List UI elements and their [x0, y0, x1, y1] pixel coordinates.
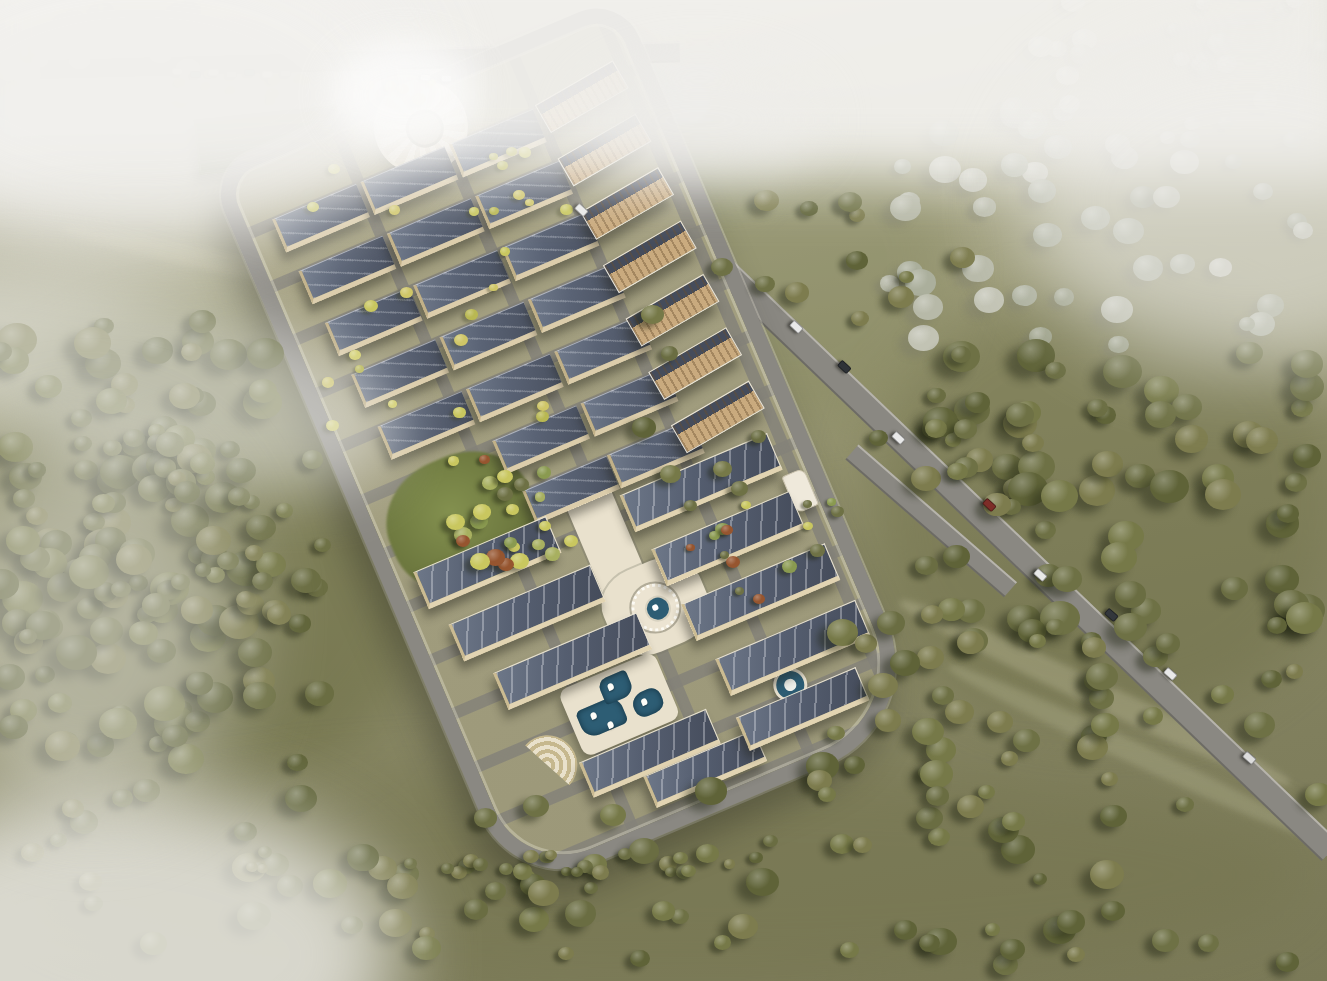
tree-bottom-band — [993, 954, 1018, 975]
tree-right-mid — [1236, 342, 1262, 364]
tree-left-forest-lower — [10, 699, 37, 722]
tree-right-upper-pale — [1153, 186, 1179, 209]
tree-bottom-band — [112, 789, 133, 806]
tree-right-upper-pale — [1081, 206, 1110, 231]
tree-right-upper-pale — [894, 159, 912, 174]
tree-right-mid — [938, 598, 966, 621]
tree-right-mid — [1291, 350, 1323, 377]
tree-left-edge-mid — [237, 593, 263, 616]
tree-bottom-band — [1198, 934, 1219, 952]
tree-left-forest-upper — [26, 507, 48, 526]
tree-left-forest-upper — [101, 492, 126, 513]
tree-topleft-pale — [178, 14, 202, 34]
tree-right-lower — [987, 711, 1013, 733]
tree-left-forest-upper — [182, 328, 214, 355]
tree-topleft-pale — [135, 88, 158, 107]
car — [172, 68, 183, 75]
tree-left-forest-lower — [162, 725, 187, 746]
tree-topright-pale — [1196, 0, 1210, 10]
tree-left-forest-lower — [243, 682, 276, 710]
tree-right-mid — [1274, 590, 1309, 619]
tree-right-mid — [1265, 565, 1299, 594]
tree-right-upper-pale — [913, 294, 943, 320]
tree-left-forest-lower — [186, 672, 213, 695]
tree-bottom-band — [919, 934, 940, 952]
tree-left-forest-lower — [287, 754, 308, 771]
tree-left-forest-lower — [35, 666, 55, 683]
tree-bottom-band — [1067, 947, 1085, 962]
apartment-slab — [535, 60, 629, 133]
tree-bottom-band — [133, 779, 160, 802]
tree-right-upper-pale — [890, 195, 921, 221]
tree-left-forest-lower — [56, 732, 77, 750]
tree-bottom-band — [652, 901, 675, 921]
apartment-slab — [580, 167, 674, 240]
tree-right-mid — [1006, 403, 1035, 427]
townhouse-block — [475, 161, 573, 230]
tree-bottom-band — [988, 817, 1019, 843]
tree-right-lower — [1046, 619, 1065, 635]
tree-bottom-band — [313, 869, 347, 898]
tree-topleft-pale — [149, 44, 172, 63]
tree-northeast-strip — [754, 190, 779, 211]
townhouse-block — [299, 236, 397, 305]
tree-riverside-yellow — [295, 74, 304, 82]
tree-right-lower — [1029, 634, 1046, 648]
tree-left-forest-upper — [97, 467, 130, 495]
tree-right-mid — [954, 395, 990, 426]
tree-left-forest-upper — [189, 310, 217, 333]
townhouse-block — [387, 198, 485, 267]
tree-left-forest-upper — [83, 513, 105, 531]
car — [837, 360, 852, 374]
tree-left-forest-lower — [99, 708, 137, 740]
round-feature-center — [783, 678, 798, 693]
tree-left-edge-mid — [245, 545, 263, 560]
tree-right-mid — [915, 556, 938, 575]
pool-water — [575, 694, 629, 740]
tree-bottom-band — [21, 843, 43, 862]
tree-left-forest-lower — [149, 736, 168, 752]
tree-bottom-band — [957, 795, 984, 818]
tree-left-forest-upper — [74, 436, 92, 451]
tree-right-upper-pale — [929, 156, 961, 183]
tree-topright-pale — [1105, 134, 1130, 156]
tree-northeast-strip — [925, 419, 947, 437]
tree-left-forest-lower — [90, 617, 123, 645]
tree-bottom-band — [978, 785, 995, 800]
tree-hedge-row — [749, 852, 762, 863]
tree-right-mid — [1108, 521, 1143, 551]
tree-left-forest-upper — [0, 347, 29, 373]
car — [982, 498, 997, 512]
tree-bottom-band — [237, 902, 270, 930]
tree-right-upper-pale — [1239, 317, 1256, 331]
tree-right-upper-pale — [1170, 150, 1199, 174]
tree-right-upper-pale — [1033, 223, 1062, 247]
apartment-slab — [626, 274, 720, 347]
tree-bottom-band — [853, 837, 872, 853]
car — [208, 69, 219, 76]
tree-topleft-pale — [32, 54, 48, 68]
tree-bottom-band — [763, 835, 778, 848]
tree-bottom-band — [1101, 901, 1125, 921]
tree-hedge-row — [441, 863, 454, 874]
tree-bottom-band — [412, 936, 441, 960]
tree-left-edge-mid — [226, 458, 255, 483]
tree-left-forest-upper — [13, 489, 36, 508]
tree-right-upper-pale — [1225, 154, 1242, 169]
tree-left-forest-upper — [0, 342, 12, 360]
tree-right-upper-pale — [1130, 186, 1156, 208]
car — [262, 71, 273, 78]
tree-topleft-pale — [153, 20, 171, 35]
tree-right-upper-pale — [974, 287, 1005, 313]
tree-left-forest-upper — [160, 461, 181, 479]
tree-left-forest-lower — [305, 681, 335, 706]
tree-right-lower — [844, 756, 865, 774]
tree-hedge-row — [592, 865, 610, 880]
tree-topleft-pale — [174, 88, 192, 103]
tree-left-forest-lower — [129, 621, 158, 645]
tree-right-mid — [1277, 504, 1299, 523]
tree-left-forest-upper — [246, 515, 275, 540]
car — [789, 320, 804, 334]
tree-hedge-row — [659, 856, 677, 871]
tree-topright-pale — [1207, 36, 1223, 50]
tree-right-upper-pale — [1113, 218, 1144, 244]
tree-right-upper-pale — [1028, 179, 1056, 203]
tree-bottom-band — [140, 932, 166, 954]
tree-right-mid — [1266, 509, 1300, 538]
tree-right-lower — [1305, 783, 1327, 806]
tree-left-forest-upper — [247, 338, 284, 370]
tree-bottom-band — [1100, 805, 1127, 828]
tree-left-forest-upper — [85, 348, 121, 379]
river-water — [110, 73, 222, 136]
tree-left-forest-lower — [0, 569, 19, 598]
tree-left-forest-lower — [137, 606, 157, 623]
tree-bottom-band — [985, 923, 1000, 936]
tree-left-forest-upper — [84, 529, 121, 560]
tree-bottom-band — [79, 872, 102, 891]
tree-left-edge-mid — [148, 424, 165, 439]
tree-left-forest-lower — [168, 744, 204, 775]
tree-hedge-row — [676, 865, 693, 879]
tree-left-forest-lower — [116, 544, 153, 575]
tree-northeast-strip — [838, 192, 861, 212]
entrance-fountain-core — [400, 104, 449, 153]
tree-left-forest-lower — [238, 638, 272, 667]
tree-topleft-pale — [161, 88, 178, 103]
tree-left-forest-lower — [129, 575, 148, 591]
townhouse-block — [440, 302, 538, 371]
tree-right-lower — [1244, 712, 1275, 739]
tree-left-forest-lower — [190, 621, 226, 652]
tree-bottom-band — [520, 870, 536, 883]
tree-left-forest-upper — [74, 460, 98, 480]
tree-left-forest-upper — [74, 327, 111, 359]
tree-bottom-band — [1001, 835, 1035, 864]
tree-right-mid — [1052, 566, 1082, 592]
tree-topright-pale — [1253, 90, 1277, 111]
tree-left-forest-upper — [188, 544, 213, 565]
tree-northeast-strip — [800, 201, 817, 216]
tree-right-upper-pale — [908, 325, 939, 352]
tree-northeast-strip — [849, 208, 865, 222]
tree-left-forest-lower — [0, 664, 25, 690]
tree-hedge-row — [673, 852, 688, 865]
tree-bottom-band — [714, 935, 732, 950]
tree-left-forest-lower — [69, 555, 109, 589]
aerial-rendering-canvas — [0, 0, 1327, 981]
tree-left-forest-upper — [0, 432, 33, 462]
tree-left-edge-mid — [267, 604, 292, 625]
townhouse-block — [351, 339, 449, 408]
tree-left-forest-lower — [243, 667, 275, 694]
tree-right-lower — [957, 631, 984, 654]
tree-right-mid — [1035, 564, 1062, 587]
tree-right-mid — [983, 493, 1010, 516]
tree-left-forest-lower — [14, 629, 43, 654]
tree-hedge-row — [252, 862, 266, 874]
tree-right-mid — [1267, 617, 1287, 634]
residential-site-band — [207, 0, 930, 897]
tree-right-lower — [1001, 751, 1019, 766]
tree-left-forest-upper — [169, 383, 199, 409]
tree-left-forest-upper — [122, 434, 153, 461]
tree-topleft-pale — [131, 24, 146, 37]
tree-right-upper-pale — [1293, 222, 1313, 239]
tree-left-forest-lower — [64, 559, 92, 582]
tree-topleft-pale — [72, 17, 88, 31]
tree-left-forest-upper — [95, 527, 126, 553]
tree-right-upper-pale — [1257, 294, 1284, 317]
tree-right-upper-pale — [1054, 288, 1075, 305]
tree-bottom-band — [1090, 860, 1124, 889]
tree-left-forest-lower — [56, 635, 97, 670]
tree-northeast-strip — [755, 276, 775, 293]
tree-right-upper-pale — [1133, 255, 1163, 280]
tree-bottom-band — [520, 874, 546, 896]
tree-topright-pale — [1274, 2, 1293, 18]
mist-patch — [0, 790, 400, 981]
tree-bottom-band — [1152, 929, 1179, 952]
tree-right-mid — [966, 448, 993, 471]
tree-right-mid — [1092, 451, 1122, 477]
tree-right-mid — [1079, 475, 1115, 505]
tree-right-upper-pale — [880, 275, 900, 292]
tree-topleft-pale — [19, 47, 38, 63]
tree-left-edge-mid — [147, 434, 168, 452]
tree-right-mid — [1045, 362, 1066, 380]
tree-left-forest-upper — [103, 440, 122, 456]
tree-bottom-band — [894, 920, 918, 940]
tree-riverside-yellow — [174, 78, 184, 87]
field-stripe — [895, 590, 1296, 795]
tree-left-forest-upper — [177, 444, 212, 473]
tree-right-lower — [945, 700, 973, 724]
tree-right-lower — [1086, 663, 1118, 690]
tree-bottom-band — [419, 927, 435, 941]
tree-right-mid — [1291, 399, 1313, 418]
tree-left-forest-upper — [220, 441, 240, 458]
tree-right-mid — [1286, 604, 1319, 632]
tree-topright-pale — [1028, 36, 1053, 57]
tree-left-forest-upper — [100, 455, 140, 489]
pool-water — [630, 685, 666, 719]
tree-right-mid — [1022, 434, 1044, 452]
tree-left-edge-mid — [236, 591, 256, 608]
tree-hedge-row — [257, 864, 269, 874]
tree-left-forest-upper — [9, 463, 41, 490]
tree-northeast-strip — [954, 419, 977, 438]
tree-northeast-strip — [851, 311, 869, 326]
tree-left-forest-upper — [94, 318, 114, 335]
tree-right-mid — [1014, 401, 1041, 424]
tree-left-edge-mid — [156, 432, 184, 456]
townhouse-block — [272, 184, 370, 253]
tree-left-forest-upper — [116, 397, 135, 413]
tree-topright-pale — [1283, 132, 1302, 148]
tree-right-lower — [1286, 664, 1303, 679]
tree-right-lower — [932, 686, 955, 705]
tree-left-forest-lower — [144, 686, 185, 720]
tree-bottom-band — [277, 875, 303, 897]
tree-riverside-yellow — [266, 88, 279, 99]
tree-topright-pale — [1180, 131, 1200, 148]
tree-hedge-row — [451, 866, 467, 879]
tree-right-upper-pale — [1022, 162, 1047, 184]
tree-right-mid — [957, 599, 985, 623]
tree-right-lower — [917, 646, 944, 669]
tree-left-forest-lower — [111, 581, 130, 597]
tree-left-forest-upper — [210, 339, 247, 370]
tree-right-mid — [1017, 339, 1056, 372]
tree-left-forest-lower — [174, 701, 193, 717]
tree-bottom-band — [928, 828, 950, 847]
tree-left-forest-lower — [0, 715, 28, 740]
car — [280, 70, 291, 77]
tree-left-forest-upper — [150, 416, 179, 440]
tree-bottom-band — [513, 863, 533, 880]
tree-left-edge-mid — [195, 563, 211, 577]
tree-topright-pale — [1072, 29, 1097, 50]
tree-northeast-strip — [846, 251, 869, 270]
tree-right-mid — [1233, 421, 1264, 447]
tree-right-mid — [1087, 399, 1108, 417]
tree-riverside-yellow — [266, 97, 275, 105]
tree-right-upper-pale — [1287, 213, 1307, 230]
tree-left-edge-mid — [190, 453, 215, 474]
tree-right-upper-pale — [1001, 153, 1029, 176]
tree-right-mid — [1172, 394, 1202, 420]
tree-left-forest-upper — [96, 388, 127, 414]
tree-bottom-band — [519, 907, 549, 932]
tree-topleft-pale — [176, 59, 201, 80]
field-stripe — [944, 657, 1316, 846]
apartment-slab — [648, 327, 742, 400]
tree-right-mid — [923, 407, 958, 437]
tree-right-lower — [1077, 734, 1108, 760]
mist-patch — [1020, 30, 1327, 370]
tree-topleft-pale — [0, 62, 19, 81]
tree-topleft-pale — [175, 1, 200, 23]
tree-right-lower — [1089, 687, 1115, 709]
tree-bottom-band — [728, 914, 758, 939]
tree-left-forest-lower — [48, 693, 72, 713]
tree-left-forest-lower — [19, 629, 37, 644]
tree-bottom-band — [916, 807, 943, 830]
tree-right-mid — [922, 419, 946, 439]
tree-left-edge-mid — [171, 574, 190, 590]
tree-left-forest-upper — [71, 409, 92, 427]
tree-northeast-strip — [888, 286, 914, 308]
tree-right-upper-pale — [973, 197, 995, 216]
tree-topright-pale — [1196, 60, 1217, 78]
tree-hedge-row — [499, 863, 513, 875]
tree-riverside-yellow — [226, 86, 235, 94]
tree-left-forest-lower — [2, 581, 43, 616]
tree-right-lower — [1101, 772, 1118, 787]
car — [244, 69, 255, 76]
tree-left-forest-lower — [77, 597, 103, 619]
tree-left-edge-mid — [142, 593, 170, 617]
tree-right-upper-pale — [1012, 285, 1037, 306]
tree-topright-pale — [1195, 51, 1216, 69]
tree-right-upper-pale — [905, 269, 936, 296]
tree-left-edge-mid — [314, 538, 331, 552]
tree-hedge-row — [681, 865, 696, 878]
tree-right-lower — [918, 765, 936, 780]
tree-right-mid — [943, 341, 980, 373]
tree-left-forest-lower — [79, 544, 111, 571]
tree-right-upper-pale — [1209, 258, 1232, 278]
tree-bottom-band — [234, 822, 257, 842]
tree-left-forest-lower — [6, 526, 40, 555]
tree-left-edge-mid — [262, 600, 288, 622]
tree-left-forest-lower — [157, 580, 181, 600]
tree-bottom-band — [387, 873, 418, 900]
tree-left-edge-mid — [181, 596, 213, 623]
tree-right-mid — [1035, 521, 1056, 539]
tree-left-forest-lower — [47, 573, 81, 602]
tree-left-edge-mid — [289, 614, 311, 633]
tree-left-forest-lower — [41, 530, 73, 557]
tree-northeast-strip — [945, 433, 961, 447]
tree-right-mid — [943, 545, 970, 568]
tree-left-edge-mid — [206, 567, 226, 584]
tree-hedge-row — [246, 862, 258, 872]
tree-left-forest-lower — [256, 552, 286, 577]
tree-topleft-pale — [103, 25, 119, 39]
tree-left-forest-upper — [205, 482, 241, 512]
tree-right-mid — [1125, 464, 1154, 489]
tree-bottom-band — [924, 928, 956, 955]
tree-bottom-band — [830, 834, 854, 855]
car — [1163, 667, 1178, 681]
tree-bottom-band — [584, 882, 598, 894]
tree-right-upper-pale — [1029, 327, 1052, 346]
tree-bottom-band — [840, 942, 859, 958]
tree-left-forest-upper — [132, 453, 169, 485]
tree-left-forest-lower — [196, 526, 230, 555]
tree-bottom-band — [341, 916, 363, 935]
tree-right-lower — [1143, 646, 1169, 668]
tree-right-mid — [1018, 451, 1055, 482]
tree-bottom-band — [1043, 916, 1076, 944]
tree-right-upper-pale — [1000, 97, 1031, 124]
